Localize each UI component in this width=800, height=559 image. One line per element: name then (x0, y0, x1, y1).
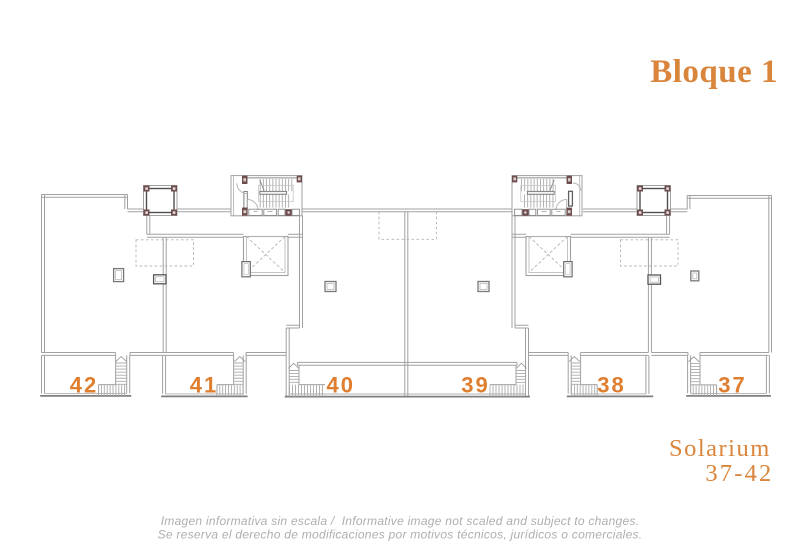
svg-text:37-42: 37-42 (705, 460, 773, 487)
svg-text:42: 42 (70, 372, 98, 397)
svg-text:40: 40 (327, 372, 355, 397)
svg-text:Bloque 1: Bloque 1 (650, 54, 778, 90)
svg-text:37: 37 (718, 372, 746, 397)
svg-text:41: 41 (190, 372, 218, 397)
svg-text:38: 38 (597, 372, 625, 397)
svg-text:Solarium: Solarium (669, 435, 771, 462)
svg-text:Imagen informativa sin escala: Imagen informativa sin escala / Informat… (161, 514, 640, 528)
svg-text:39: 39 (461, 372, 489, 397)
svg-text:Se reserva el derecho de modif: Se reserva el derecho de modificaciones … (158, 528, 643, 542)
